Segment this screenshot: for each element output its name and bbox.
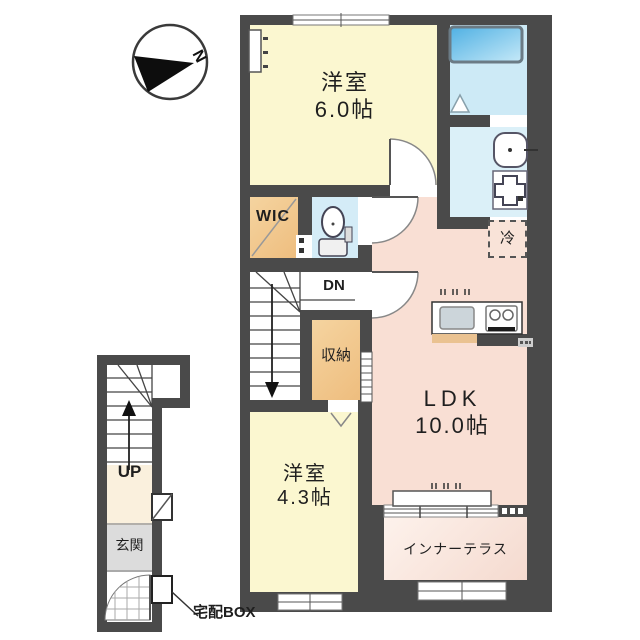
label-delivery-box: 宅配BOX: [193, 604, 283, 622]
bathtub-icon: [450, 27, 522, 112]
kitchen-counter-icon: [432, 289, 533, 347]
delivery-box-icon: [152, 576, 198, 616]
label-refrigerator: 冷: [488, 230, 527, 248]
label-stairs-up: UP: [107, 462, 152, 483]
washer-pan-icon: [493, 171, 527, 209]
label-western-room-6: 洋室 6.0帖: [265, 70, 425, 124]
washbasin-icon: [494, 133, 538, 167]
label-entrance: 玄関: [107, 537, 152, 554]
ldk-counter-icon: [393, 483, 491, 506]
toilet-icon: [319, 207, 352, 256]
floor-plan: N: [0, 0, 640, 640]
shoe-cabinet-icon: [152, 494, 172, 520]
label-wic: WIC: [248, 207, 298, 227]
compass-icon: N: [133, 25, 209, 99]
label-western-room-43: 洋室 4.3帖: [235, 462, 375, 511]
label-ldk: LDK 10.0帖: [375, 386, 530, 440]
label-storage: 収納: [310, 347, 362, 365]
label-inner-terrace: インナーテラス: [384, 541, 527, 558]
label-stairs-down: DN: [314, 277, 354, 295]
